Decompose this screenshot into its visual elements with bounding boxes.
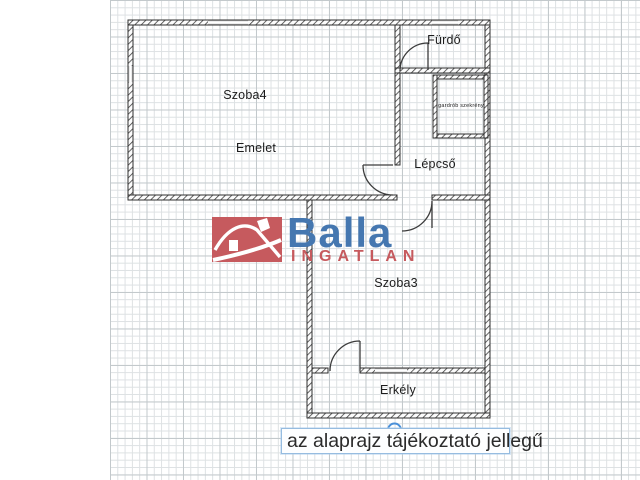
room-label-gardrob-szekreny: gardrób szekrény	[438, 103, 484, 109]
disclaimer-caption: az alaprajz tájékoztató jellegű	[281, 428, 510, 454]
walls	[128, 20, 490, 418]
room-label-furdo: Fürdő	[427, 33, 461, 47]
room-label-szoba3: Szoba3	[374, 276, 418, 290]
floorplan-drawing	[0, 0, 640, 480]
room-label-emelet: Emelet	[236, 141, 276, 155]
doors	[330, 43, 432, 371]
room-label-lepcso: Lépcső	[414, 157, 456, 171]
floorplan-page: Szoba4 Emelet Fürdő gardrób szekrény Lép…	[0, 0, 640, 480]
room-label-szoba4: Szoba4	[223, 88, 267, 102]
room-label-erkely: Erkély	[380, 383, 416, 397]
